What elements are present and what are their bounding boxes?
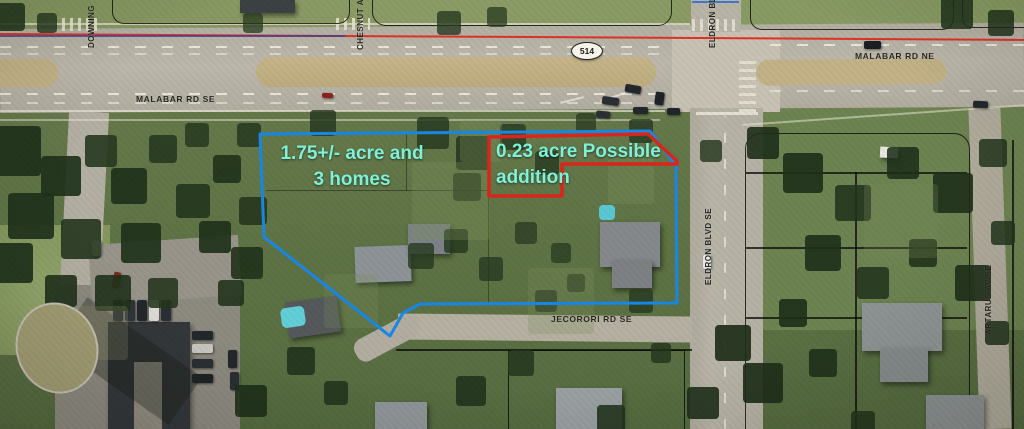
label-eldron-south: ELDRON BLVD SE xyxy=(704,165,713,285)
label-eldron-north: ELDRON BLVD xyxy=(708,0,717,48)
route-shield-text: 514 xyxy=(580,46,594,56)
label-downing: DOWNING xyxy=(87,0,96,48)
label-parcel-main-line2: 3 homes xyxy=(247,167,457,193)
label-chesnut: CHESNUT AVE xyxy=(356,0,365,50)
route-shield-514: 514 xyxy=(571,42,603,60)
label-artarus: ARTARUS AV SE xyxy=(984,243,993,335)
label-malabar-ne: MALABAR RD NE xyxy=(855,51,935,61)
label-parcel-addition-line2: addition xyxy=(496,165,676,191)
label-parcel-main: 1.75+/- acre and 3 homes xyxy=(247,141,457,193)
aerial-map: 1.75+/- acre and 3 homes 0.23 acre Possi… xyxy=(0,0,1024,429)
annotation-overlay xyxy=(0,0,1024,429)
label-jecorori: JECORORI RD SE xyxy=(551,314,632,324)
label-parcel-addition-line1: 0.23 acre Possible xyxy=(496,139,676,165)
label-malabar-sw: MALABAR RD SE xyxy=(136,94,215,104)
label-parcel-main-line1: 1.75+/- acre and xyxy=(247,141,457,167)
label-parcel-addition: 0.23 acre Possible addition xyxy=(496,139,676,191)
